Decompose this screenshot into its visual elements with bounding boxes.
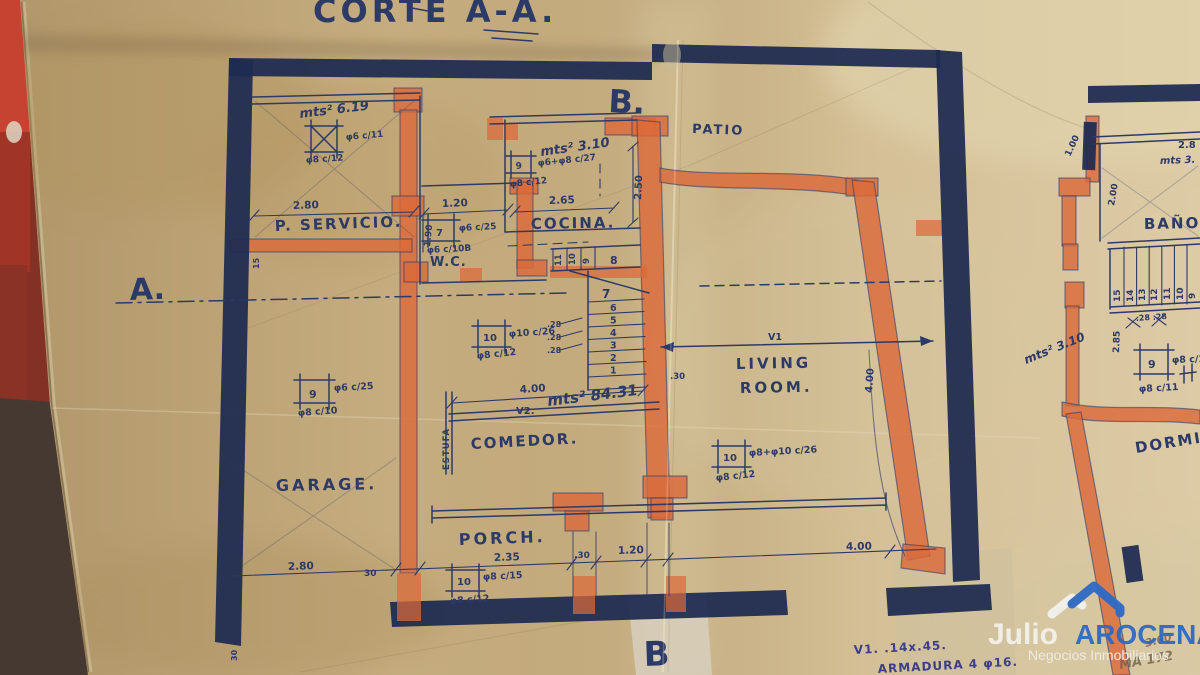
rebar-box-1 [305, 120, 343, 158]
wall-garage-right [400, 110, 417, 573]
rebar-text: 9 [309, 388, 317, 401]
dim-living-d: 4.00 [864, 368, 877, 393]
dim-right-depth: 2.85 [1112, 331, 1123, 354]
room-label-patio: PATIO [692, 122, 745, 139]
room-label-bano: BAÑO [1144, 213, 1200, 233]
dim-servicio-w: 2.80 [293, 199, 319, 212]
dim-wall-b: .30 [574, 551, 590, 561]
section-marker-b-bottom: B [643, 634, 670, 675]
rebar-text: 9 [1148, 358, 1156, 371]
room-label-garage: GARAGE. [276, 474, 378, 495]
logo-tagline: Negocios Inmobiliarios [1028, 647, 1169, 663]
stair-num: 10 [568, 253, 578, 265]
room-label-living-1: LIVING [736, 354, 812, 373]
dim-wall-a: 30 [364, 569, 377, 579]
dim-band-15: 15 [252, 257, 261, 269]
dim-band-30: 30 [230, 649, 239, 661]
photo-of-floorplan: CORTE A-A. A. B. B P. SERVICIO. W.C. COC… [0, 0, 1200, 675]
dim-tread-3: .28 [547, 346, 562, 355]
sheet-title: CORTE A-A. [313, 0, 557, 30]
section-marker-b-top: B. [608, 82, 646, 122]
stair-num: 14 [1126, 289, 1136, 302]
stair-num: 4 [610, 328, 617, 339]
rebar-text: φ8 c/11 [1139, 382, 1179, 395]
wall-right-sheet [1066, 306, 1079, 406]
stair-num: 6 [610, 303, 617, 314]
rebar-text: 10 [457, 577, 471, 588]
wall-porch-pillar [553, 493, 603, 511]
dim-garage-w: 2.80 [288, 560, 314, 573]
dim-bano: 2.8 [1178, 140, 1196, 151]
floorplan-drawing: CORTE A-A. A. B. B P. SERVICIO. W.C. COC… [0, 0, 1200, 675]
rebar-text: φ6 c/25 [334, 381, 374, 394]
room-label-cocina: COCINA. [531, 214, 616, 233]
dim-wc-w: 1.20 [442, 197, 468, 210]
stair-num: 2 [610, 353, 617, 364]
stair-num: 3 [610, 341, 617, 352]
room-label-wc: W.C. [430, 255, 467, 270]
window-mark-v2: V2. [516, 406, 535, 417]
stair-num: 11 [1163, 287, 1173, 300]
stair-num: 15 [1113, 289, 1123, 302]
stair-num: 1 [610, 366, 617, 377]
rebar-text: 9 [515, 161, 522, 172]
band-right-sheet [1088, 84, 1200, 103]
dim-entry-w: 1.20 [618, 544, 644, 557]
logo-last-name: AROCENA [1075, 619, 1200, 650]
stair-num: 9 [1188, 293, 1198, 299]
dim-porch-w: 2.35 [494, 551, 520, 564]
dim-front-w: 4.00 [846, 541, 872, 553]
room-label-living-2: ROOM. [740, 378, 813, 397]
wall-highlight-spot [6, 121, 22, 143]
dim-stair-wall: .30 [670, 372, 685, 382]
stair-num: 10 [1176, 287, 1186, 300]
label-estufa: ESTUFA [442, 428, 452, 470]
wall-servicio-bottom [230, 239, 412, 252]
stair-num: 13 [1138, 288, 1148, 301]
dim-cocina-w: 2.65 [549, 194, 575, 207]
stair-num: 9 [582, 258, 592, 264]
dim-comedor-w: 4.00 [519, 382, 546, 396]
stair-num: 8 [610, 254, 618, 267]
rebar-text: φ8 c/15 [1172, 354, 1200, 366]
rebar-text: 10 [483, 333, 497, 344]
rebar-text: 7 [436, 228, 443, 239]
stair-num: 7 [602, 287, 610, 301]
rebar-text: φ6 c/25 [459, 222, 497, 234]
stair-num: 5 [610, 316, 617, 327]
paper-shading [0, 0, 1200, 675]
window-mark-v1: V1 [768, 332, 782, 343]
rebar-text: 10 [723, 453, 737, 464]
room-label-porch: PORCH. [458, 527, 545, 549]
stair-num: 11 [554, 254, 564, 266]
dim-cocina-d: 2.50 [633, 175, 645, 200]
rebar-text: φ8 c/15 [483, 570, 523, 583]
area-note-bano: mts 3. [1160, 155, 1196, 167]
section-marker-a: A. [129, 272, 165, 308]
stair-num: 12 [1150, 288, 1160, 301]
